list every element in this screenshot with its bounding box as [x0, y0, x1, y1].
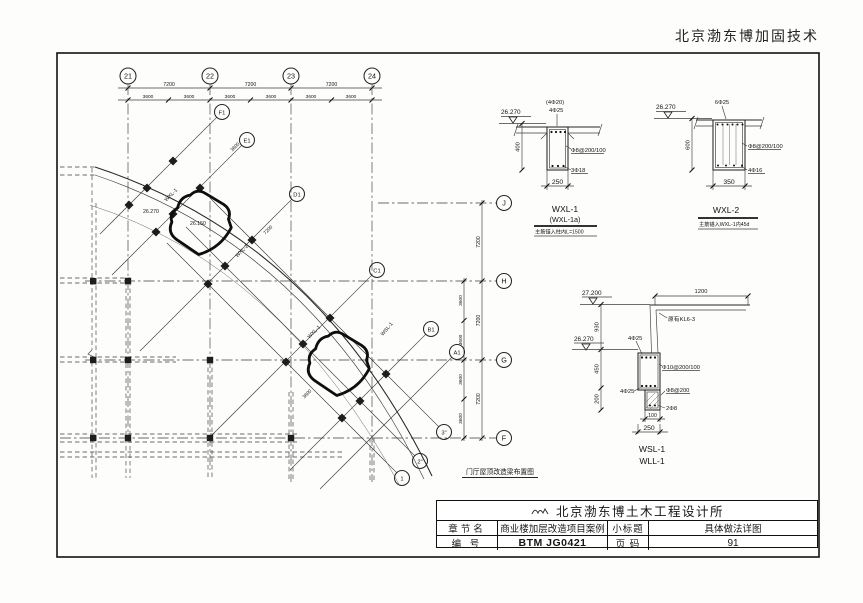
grid-bubble-label: 24 — [368, 72, 376, 81]
elevation-label: 26.270 — [656, 104, 676, 111]
detail-note: 主筋锚入WXL-1内45d — [699, 220, 750, 228]
dim-label: 350 — [723, 179, 735, 186]
dim-label: 100 — [648, 413, 657, 419]
dim-label: 930 — [595, 322, 601, 332]
rebar-label: 4Φ25 — [628, 336, 642, 342]
subtitle-value: 具体做法详图 — [649, 521, 817, 535]
chapter-label: 章节名 — [437, 521, 498, 535]
beam-label: WSL-1 — [380, 321, 395, 337]
detail-name: WXL-1 — [552, 204, 578, 214]
detail-wsl1: 27.200 1200 原有KL6-3 930 450 200 26.270 4… — [572, 289, 751, 466]
grid-bubble-label: 2" — [417, 459, 422, 465]
dim-label: 250 — [552, 179, 564, 186]
grid-bubble-label: 22 — [206, 72, 214, 81]
chapter-value: 商业楼加层改造项目案例 — [498, 521, 608, 535]
dim-label: 250 — [643, 425, 655, 432]
dim-label: 3600 — [301, 388, 313, 400]
detail-name: (WXL-1a) — [550, 215, 581, 224]
thick-openings — [159, 181, 379, 404]
dim-label: 3600 — [458, 413, 464, 424]
dim-label: 7200 — [245, 82, 257, 88]
grid-bubbles-diagonal: F1 E1 D1 C1 B1 A1 3" 2" 1 — [215, 105, 465, 486]
subtitle-label: 小标题 — [608, 521, 649, 535]
dim-label: 3600 — [225, 94, 236, 100]
elevation-label: 26.270 — [143, 209, 159, 215]
grid-bubble-label: C1 — [373, 268, 380, 274]
detail-wxl2: 26.270 6Φ25 600 Φ8@200/100 4Φ16 350 WXL-… — [654, 100, 783, 229]
plan-right-dimensions: 7200 7200 7200 3600 3600 3600 3600 — [458, 200, 485, 441]
grid-bubble-label: H — [501, 277, 506, 286]
detail-wxl1: 26.270 400 250 (4Φ20) 4Φ25 Φ8@200/100 3Φ… — [499, 100, 606, 236]
dim-label: 3600 — [306, 94, 317, 100]
dim-label: 7200 — [326, 82, 338, 88]
title-block-row-chapter: 章节名 商业楼加层改造项目案例 小标题 具体做法详图 — [437, 521, 817, 535]
grid-bubble-label: E1 — [243, 138, 250, 144]
dim-label: 3600 — [184, 94, 195, 100]
elevation-label: 26.150 — [190, 221, 206, 227]
rebar-label: Φ8@200/100 — [571, 148, 606, 154]
beam-label: WXL-1 — [307, 324, 323, 340]
grid-bubble-label: J — [502, 199, 506, 208]
rebar-label: 4Φ16 — [748, 168, 762, 174]
grid-bubble-label: G — [501, 356, 507, 365]
dim-label: 7200 — [476, 393, 482, 405]
grid-bubble-label: A1 — [453, 350, 460, 356]
dim-label: 3600 — [458, 334, 464, 345]
title-block: 北京渤东博土木工程设计所 章节名 商业楼加层改造项目案例 小标题 具体做法详图 … — [436, 500, 818, 548]
beam-label: WXL-2 — [235, 243, 251, 259]
page-value: 91 — [649, 536, 817, 550]
existing-walls — [60, 168, 374, 482]
company-name: 北京渤东博土木工程设计所 — [556, 501, 724, 520]
dim-label: 3600 — [458, 374, 464, 385]
dim-label: 7200 — [476, 236, 482, 248]
detail-name: WSL-1 — [639, 444, 665, 454]
grid-bubble-label: 23 — [287, 72, 295, 81]
dim-label: 200 — [595, 394, 601, 404]
rebar-label: 4Φ25 — [620, 389, 634, 395]
dim-label: 3600 — [143, 94, 154, 100]
dim-label: 3600 — [458, 295, 464, 306]
rebar-label: Φ8@200 — [666, 388, 689, 394]
elevation-label: 27.200 — [582, 290, 602, 297]
grid-lines-diagonal — [100, 117, 452, 489]
dim-label: 3600 — [266, 94, 277, 100]
detail-note: 主筋锚入柱内L=1500 — [535, 228, 584, 236]
number-label: 编 号 — [437, 536, 498, 550]
rebar-label: 6Φ25 — [715, 100, 729, 106]
dim-label: 1200 — [695, 289, 708, 295]
page-label: 页 码 — [608, 536, 649, 550]
grid-bubble-label: 1 — [400, 476, 403, 482]
dim-label: 7200 — [476, 315, 482, 327]
rebar-label: 2Φ8 — [666, 406, 677, 412]
dim-label: 450 — [595, 364, 601, 374]
title-block-row-number: 编 号 BTM JG0421 页 码 91 — [437, 535, 817, 550]
title-block-company-row: 北京渤东博土木工程设计所 — [437, 501, 817, 521]
grid-bubble-label: F1 — [219, 110, 226, 116]
elevation-label: 26.270 — [501, 109, 521, 116]
detail-name: WXL-2 — [713, 205, 739, 215]
grid-bubble-label: D1 — [293, 192, 300, 198]
plan-title-text: 门厅屋顶改造梁布置图 — [466, 467, 534, 476]
dim-label: 600 — [686, 140, 692, 150]
grid-bubble-label: 21 — [124, 72, 132, 81]
dim-label: 400 — [516, 142, 522, 152]
rebar-label: (4Φ20) — [546, 100, 564, 106]
rebar-label: Φ10@200/100 — [662, 365, 700, 371]
rebar-label: 4Φ25 — [549, 108, 563, 114]
plan-labels: 26.270 26.150 WXL-1 WXL-2 WXL-1 WSL-1 36… — [143, 141, 395, 400]
elevation-label: 26.270 — [574, 336, 594, 343]
grid-bubble-label: F — [502, 434, 507, 443]
design-institute-logo — [530, 505, 550, 517]
plan-top-dimensions: 7200 7200 7200 3600 3600 3600 3600 3600 … — [118, 82, 382, 103]
rebar-label: Φ8@200/100 — [748, 144, 783, 150]
number-value: BTM JG0421 — [498, 536, 608, 550]
dim-label: 7200 — [163, 82, 175, 88]
existing-beam-label: 原有KL6-3 — [668, 315, 695, 323]
grid-bubble-label: 3" — [441, 430, 446, 436]
plan-title: 门厅屋顶改造梁布置图 — [462, 467, 538, 478]
dim-label: 3600 — [346, 94, 357, 100]
grid-bubble-label: B1 — [427, 327, 434, 333]
detail-name: WLL-1 — [639, 456, 665, 466]
dim-label: 7200 — [262, 224, 274, 236]
rebar-label: 3Φ18 — [571, 168, 585, 174]
